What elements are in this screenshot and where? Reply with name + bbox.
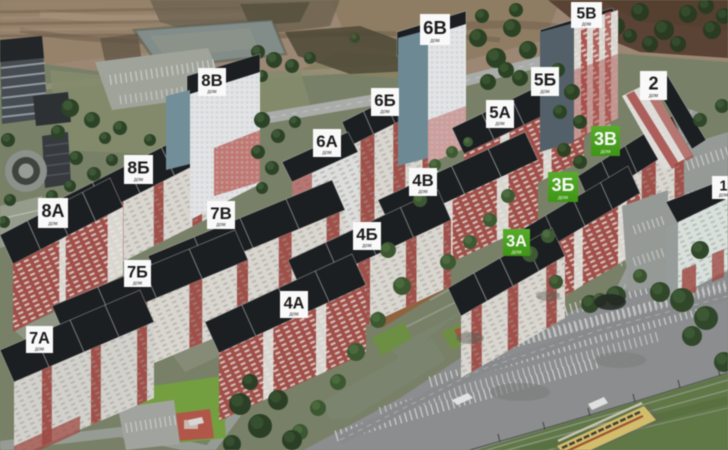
svg-text:2: 2 — [648, 74, 658, 94]
svg-text:3Б: 3Б — [552, 175, 575, 195]
svg-text:7А: 7А — [29, 329, 50, 347]
svg-text:6Б: 6Б — [374, 91, 395, 110]
svg-text:дом: дом — [133, 280, 143, 286]
svg-text:дом: дом — [418, 189, 428, 195]
svg-text:дом: дом — [380, 109, 390, 115]
svg-text:дом: дом — [540, 89, 550, 95]
svg-text:дом: дом — [495, 121, 505, 127]
svg-text:6А: 6А — [316, 132, 337, 151]
svg-text:3В: 3В — [594, 129, 617, 149]
svg-text:5Б: 5Б — [534, 70, 556, 90]
svg-text:дом: дом — [322, 150, 332, 156]
svg-text:5А: 5А — [489, 103, 510, 122]
svg-text:дом: дом — [289, 311, 299, 317]
svg-text:дом: дом — [600, 149, 610, 155]
svg-text:7В: 7В — [210, 204, 231, 223]
svg-text:дом: дом — [216, 222, 226, 228]
svg-text:дом: дом — [430, 38, 440, 44]
svg-text:6В: 6В — [423, 17, 447, 38]
svg-text:дом: дом — [207, 89, 217, 95]
svg-text:7Б: 7Б — [127, 263, 148, 281]
svg-text:дом: дом — [35, 346, 45, 352]
svg-text:4Б: 4Б — [356, 225, 377, 244]
svg-text:8Б: 8Б — [127, 158, 149, 178]
svg-text:дом: дом — [649, 93, 659, 99]
svg-text:дом: дом — [48, 221, 58, 227]
svg-text:дом: дом — [558, 195, 568, 201]
svg-text:дом: дом — [511, 249, 521, 255]
svg-text:дом: дом — [134, 177, 144, 183]
svg-text:3А: 3А — [506, 232, 527, 250]
svg-text:8А: 8А — [41, 201, 64, 221]
svg-text:4А: 4А — [284, 294, 305, 312]
svg-text:дом: дом — [582, 21, 592, 27]
svg-text:5В: 5В — [577, 6, 597, 23]
svg-text:дом: дом — [719, 193, 728, 199]
svg-text:4В: 4В — [412, 171, 433, 190]
svg-text:8В: 8В — [201, 71, 222, 90]
svg-text:дом: дом — [362, 243, 372, 249]
